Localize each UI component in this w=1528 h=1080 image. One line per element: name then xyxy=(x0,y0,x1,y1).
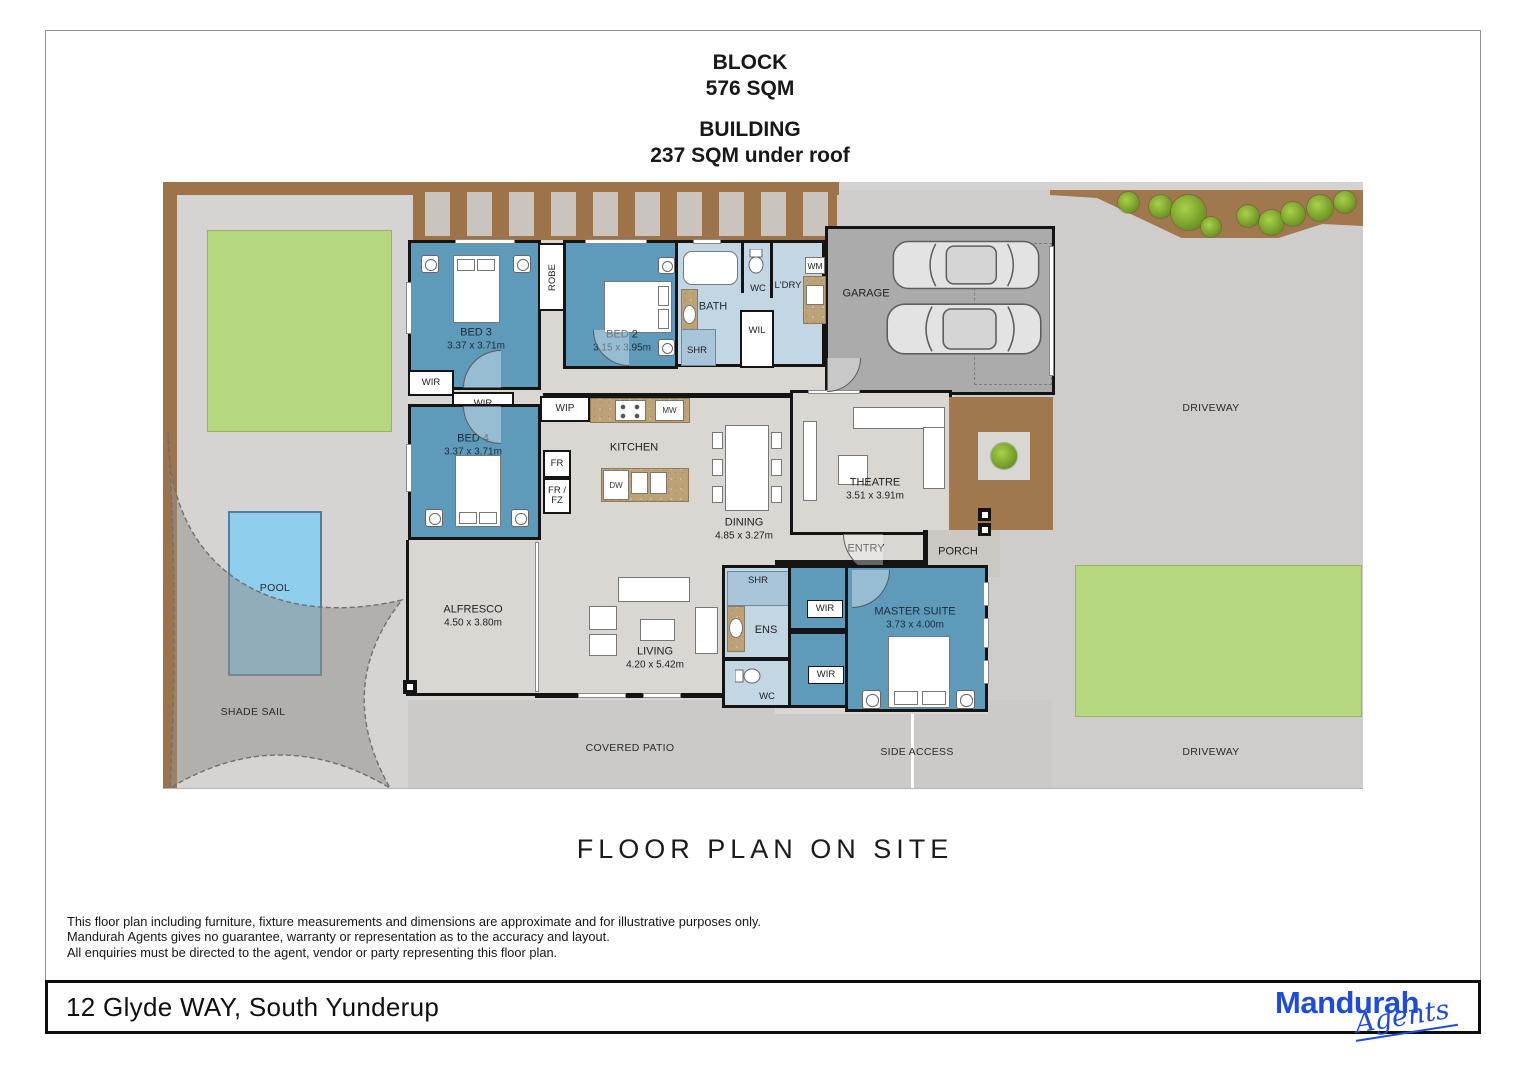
pillow xyxy=(894,691,918,705)
address-bar: 12 Glyde WAY, South Yunderup Mandurah Ag… xyxy=(45,980,1481,1034)
dining-dims: 4.85 x 3.27m xyxy=(715,530,773,543)
ens-label: ENS xyxy=(755,625,778,636)
wil-label: WIL xyxy=(749,326,766,337)
bed-icon xyxy=(604,281,672,333)
window xyxy=(643,693,681,698)
sink-icon xyxy=(631,472,648,494)
dining-label: DINING xyxy=(725,517,764,530)
tree-icon xyxy=(1201,217,1221,237)
pergola-slat xyxy=(593,192,618,236)
tree-icon xyxy=(1334,191,1356,213)
wir-label: WIR xyxy=(817,670,835,681)
porch-label: PORCH xyxy=(938,546,978,559)
chair-icon xyxy=(771,486,782,503)
garage-door-opening xyxy=(1049,246,1054,376)
sofa-icon xyxy=(923,427,945,489)
wir-label: WIR xyxy=(816,604,834,615)
basin-icon xyxy=(729,618,743,638)
window xyxy=(983,582,989,606)
bedside-lamp-icon xyxy=(511,509,529,527)
window xyxy=(578,693,626,698)
wir-label-box: WIR xyxy=(808,666,844,684)
bed-icon xyxy=(888,636,950,708)
tv-cabinet-icon xyxy=(695,607,718,654)
pergola-slat xyxy=(719,192,744,236)
site-plan: POOL SHADE SAIL xyxy=(163,182,1363,789)
window xyxy=(455,239,515,244)
alfresco-post xyxy=(403,680,417,694)
door-arc xyxy=(852,570,890,608)
chair-icon xyxy=(712,459,723,476)
ldry-label: L'DRY xyxy=(775,281,802,292)
pillow xyxy=(658,309,669,329)
pergola-slat xyxy=(425,192,450,236)
tree-icon xyxy=(1281,202,1305,226)
pergola-slat xyxy=(761,192,786,236)
armchair-icon xyxy=(589,606,617,630)
shr-label: SHR xyxy=(687,346,707,357)
kitchen-label: KITCHEN xyxy=(610,442,658,455)
car-icon xyxy=(884,299,1044,359)
sliding-door xyxy=(535,542,539,692)
covered-patio-label: COVERED PATIO xyxy=(586,742,675,754)
window xyxy=(693,239,721,244)
wc-room: WC xyxy=(722,658,792,708)
bed-icon xyxy=(455,455,501,527)
tree-icon xyxy=(1237,205,1259,227)
master-dims: 3.73 x 4.00m xyxy=(886,619,944,632)
disclaimer-line: Mandurah Agents gives no guarantee, warr… xyxy=(67,929,761,944)
pergola-slat xyxy=(551,192,576,236)
wip-label: WIP xyxy=(556,404,575,415)
bathtub-icon xyxy=(683,251,738,285)
porch-post xyxy=(978,508,991,521)
disclaimer-line: This floor plan including furniture, fix… xyxy=(67,914,761,929)
toilet-icon xyxy=(748,249,764,275)
toilet-icon xyxy=(735,666,761,684)
header: BLOCK 576 SQM BUILDING 237 SQM under roo… xyxy=(0,50,1500,169)
bedside-lamp-icon xyxy=(513,255,531,273)
washing-machine-icon: WM xyxy=(805,257,825,274)
bedside-lamp-icon xyxy=(658,257,675,274)
garage-label: GARAGE xyxy=(842,288,889,301)
building-title: BUILDING xyxy=(0,117,1500,143)
wir-label: WIR xyxy=(422,378,440,389)
sofa-icon xyxy=(618,577,690,602)
pergola-slat xyxy=(509,192,534,236)
living-label: LIVING xyxy=(637,646,673,659)
bed-icon xyxy=(453,255,500,323)
wir-closet: WIR xyxy=(408,370,454,396)
wall xyxy=(406,540,409,696)
shr-label: SHR xyxy=(748,576,768,587)
courtyard-garden xyxy=(949,397,1053,530)
cooktop-icon xyxy=(615,400,646,421)
window xyxy=(983,618,989,648)
pillow xyxy=(477,259,495,271)
window xyxy=(406,444,412,492)
wip-pantry: WIP xyxy=(540,396,590,422)
alfresco-dims: 4.50 x 3.80m xyxy=(444,617,502,630)
shade-sail-shape xyxy=(163,422,413,788)
bed4-dims: 3.37 x 3.71m xyxy=(444,446,502,459)
armchair-icon xyxy=(589,634,617,656)
wc-label: WC xyxy=(750,284,766,295)
window xyxy=(983,660,989,684)
bedside-lamp-icon xyxy=(421,255,439,273)
block-value: 576 SQM xyxy=(0,76,1500,102)
sink-icon xyxy=(650,472,667,494)
porch-post xyxy=(978,523,991,536)
agency-logo: Mandurah Agents xyxy=(1275,979,1460,1035)
pergola xyxy=(413,184,837,241)
wir-room: WIR xyxy=(788,631,848,708)
wir-label-box: WIR xyxy=(807,600,843,618)
master-label: MASTER SUITE xyxy=(874,606,955,619)
garage-room xyxy=(825,226,1055,395)
rear-lawn xyxy=(1075,565,1362,717)
chair-icon xyxy=(771,432,782,449)
driveway-label: DRIVEWAY xyxy=(1182,402,1239,414)
plan-title: FLOOR PLAN ON SITE xyxy=(0,834,1528,865)
tv-cabinet-icon xyxy=(803,421,817,501)
side-access-label: SIDE ACCESS xyxy=(880,746,953,758)
bedside-lamp-icon xyxy=(658,339,675,356)
plant-icon xyxy=(991,443,1017,469)
wir-room: WIR xyxy=(788,565,848,631)
frfz-label: FR / FZ xyxy=(548,486,566,507)
basin-icon xyxy=(683,305,696,324)
bedside-lamp-icon xyxy=(862,690,881,709)
fridge-freezer-box: FR / FZ xyxy=(543,478,571,514)
pillow xyxy=(459,512,477,524)
chair-icon xyxy=(712,486,723,503)
disclaimer-line: All enquiries must be directed to the ag… xyxy=(67,945,761,960)
pergola-slat xyxy=(635,192,660,236)
property-address: 12 Glyde WAY, South Yunderup xyxy=(66,992,439,1023)
block-title: BLOCK xyxy=(0,50,1500,76)
chair-icon xyxy=(712,432,723,449)
driveway-label: DRIVEWAY xyxy=(1182,746,1239,758)
theatre-dims: 3.51 x 3.91m xyxy=(846,490,904,503)
chair-icon xyxy=(771,459,782,476)
sofa-icon xyxy=(853,407,945,429)
bedside-lamp-icon xyxy=(956,690,975,709)
tree-icon xyxy=(1307,195,1333,221)
living-dims: 4.20 x 5.42m xyxy=(626,659,684,672)
microwave-icon: MW xyxy=(655,400,684,421)
wall xyxy=(535,693,739,698)
theatre-label: THEATRE xyxy=(850,477,901,490)
pillow xyxy=(457,259,475,271)
dining-table-icon xyxy=(725,425,769,511)
bedside-lamp-icon xyxy=(425,509,443,527)
alfresco-label: ALFRESCO xyxy=(443,604,502,617)
robe-label: ROBE xyxy=(547,264,558,291)
floor-plan-page: BLOCK 576 SQM BUILDING 237 SQM under roo… xyxy=(0,0,1528,1080)
pergola-slat xyxy=(467,192,492,236)
coffee-table-icon xyxy=(640,619,675,641)
front-lawn xyxy=(207,230,392,432)
pillow xyxy=(479,512,497,524)
ensuite-room: SHR ENS xyxy=(722,565,792,660)
fridge-box: FR xyxy=(543,450,571,478)
wall xyxy=(741,243,744,293)
dishwasher-icon: DW xyxy=(603,470,629,500)
pergola-slat xyxy=(677,192,702,236)
laundry-tub-icon xyxy=(806,285,824,305)
window xyxy=(585,239,647,244)
wil-closet: WIL xyxy=(740,310,774,368)
bed3-label: BED 3 xyxy=(460,327,492,340)
pillow xyxy=(922,691,946,705)
tree-icon xyxy=(1149,195,1172,218)
bath-label: BATH xyxy=(699,301,728,314)
shade-sail-label: SHADE SAIL xyxy=(221,706,286,718)
wc-label: WC xyxy=(759,692,775,703)
theatre-room xyxy=(790,390,952,535)
pillow xyxy=(658,286,669,306)
car-icon xyxy=(890,237,1042,293)
window xyxy=(406,282,412,334)
tree-icon xyxy=(1118,192,1139,213)
building-value: 237 SQM under roof xyxy=(0,143,1500,169)
robe-closet: ROBE xyxy=(538,243,566,311)
disclaimer: This floor plan including furniture, fix… xyxy=(67,914,761,960)
master-suite-room xyxy=(845,565,988,712)
wall xyxy=(770,243,773,298)
fr-label: FR xyxy=(551,459,564,470)
wall xyxy=(406,693,540,696)
